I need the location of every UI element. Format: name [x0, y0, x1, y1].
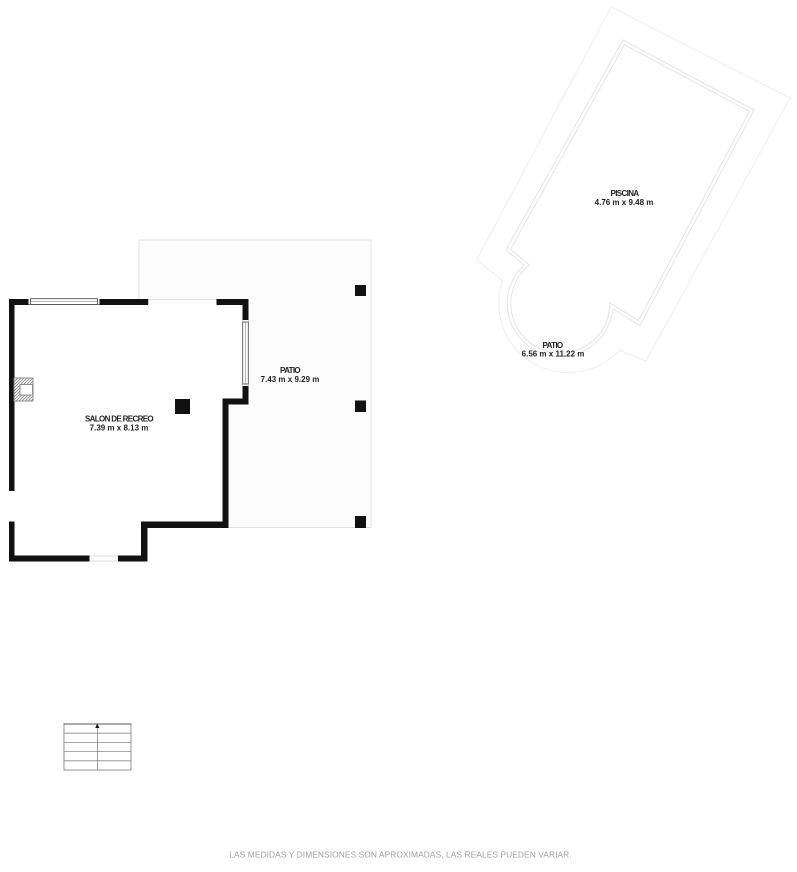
svg-text:LAS MEDIDAS Y DIMENSIONES SON: LAS MEDIDAS Y DIMENSIONES SON APROXIMADA…	[229, 850, 571, 860]
svg-text:SALON DE RECREO: SALON DE RECREO	[85, 415, 153, 424]
svg-text:PATIO: PATIO	[280, 366, 300, 375]
svg-text:7.43 m x 9.29 m: 7.43 m x 9.29 m	[261, 375, 320, 384]
svg-text:6.56 m x 11.22 m: 6.56 m x 11.22 m	[522, 350, 585, 359]
svg-text:7.39 m x 8.13 m: 7.39 m x 8.13 m	[90, 424, 149, 433]
svg-text:PISCINA: PISCINA	[611, 189, 640, 198]
svg-text:4.76 m x 9.48 m: 4.76 m x 9.48 m	[595, 198, 654, 207]
